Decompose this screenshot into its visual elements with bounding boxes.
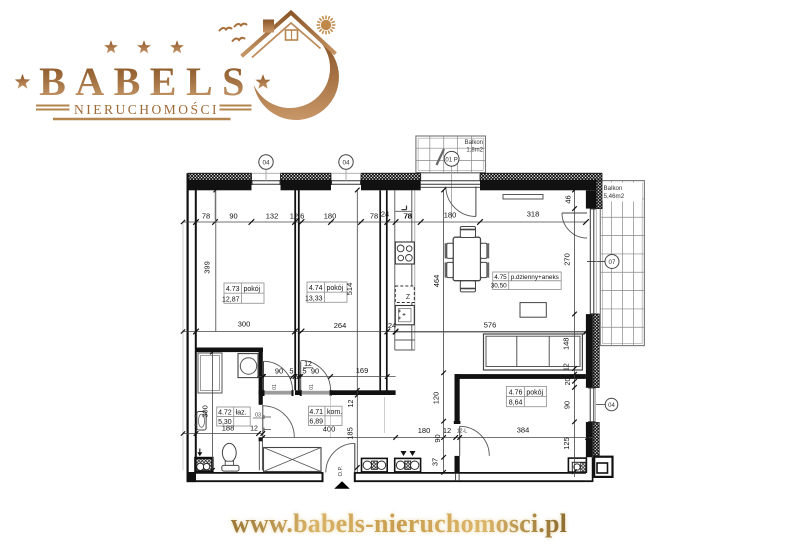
svg-text:p.dzienny+aneks: p.dzienny+aneks <box>511 274 559 281</box>
svg-text:4.73: 4.73 <box>226 286 240 293</box>
svg-text:180: 180 <box>324 212 337 221</box>
svg-text:8,64: 8,64 <box>509 400 523 407</box>
svg-text:90: 90 <box>433 434 442 442</box>
svg-text:Z: Z <box>406 294 411 301</box>
svg-text:4.76: 4.76 <box>509 390 523 397</box>
svg-text:180: 180 <box>418 426 431 435</box>
svg-text:300: 300 <box>200 405 209 418</box>
svg-text:kom.: kom. <box>327 409 342 416</box>
svg-text:464: 464 <box>432 275 441 288</box>
svg-text:04: 04 <box>608 403 615 409</box>
svg-text:04: 04 <box>262 160 270 167</box>
svg-text:400: 400 <box>323 425 336 434</box>
svg-text:270: 270 <box>563 253 572 266</box>
svg-text:46: 46 <box>564 195 573 203</box>
svg-text:13,33: 13,33 <box>305 295 323 302</box>
svg-text:01: 01 <box>309 384 315 390</box>
svg-text:01: 01 <box>272 384 278 390</box>
svg-text:318: 318 <box>527 210 540 219</box>
svg-text:148: 148 <box>561 338 570 351</box>
svg-text:D.P.: D.P. <box>338 466 344 476</box>
svg-text:www.babels-nieruchomosci.pl: www.babels-nieruchomosci.pl <box>231 509 567 538</box>
svg-text:4.74: 4.74 <box>309 285 323 292</box>
svg-text:01 P: 01 P <box>445 157 457 163</box>
svg-text:132: 132 <box>266 212 279 221</box>
svg-text:5,46m2: 5,46m2 <box>604 193 625 200</box>
svg-text:514: 514 <box>345 283 354 296</box>
svg-text:5: 5 <box>289 367 293 376</box>
svg-text:12-L: 12-L <box>457 429 467 435</box>
svg-text:12: 12 <box>304 361 312 368</box>
svg-text:384: 384 <box>517 426 530 435</box>
svg-text:90: 90 <box>563 401 572 409</box>
svg-text:37: 37 <box>431 458 440 466</box>
svg-text:78: 78 <box>370 212 378 221</box>
svg-text:90: 90 <box>275 367 283 376</box>
svg-text:4.72: 4.72 <box>218 410 232 417</box>
svg-text:03: 03 <box>255 413 261 419</box>
svg-text:125: 125 <box>562 437 571 450</box>
svg-text:24: 24 <box>381 210 389 219</box>
svg-text:12,6: 12,6 <box>290 212 305 221</box>
svg-text:180: 180 <box>444 211 457 220</box>
svg-text:78: 78 <box>404 212 412 221</box>
svg-text:6,89: 6,89 <box>309 419 323 426</box>
svg-text:120: 120 <box>432 392 441 405</box>
svg-text:264: 264 <box>334 321 347 330</box>
svg-text:pokój: pokój <box>244 286 261 293</box>
svg-text:20: 20 <box>565 378 572 386</box>
svg-text:1,8m2: 1,8m2 <box>466 148 483 154</box>
svg-text:185: 185 <box>346 427 355 440</box>
svg-text:576: 576 <box>484 321 497 330</box>
svg-text:30,50: 30,50 <box>491 283 507 290</box>
svg-text:pokój: pokój <box>327 285 344 292</box>
svg-text:24: 24 <box>388 321 396 330</box>
svg-text:BABELS: BABELS <box>39 59 254 104</box>
svg-text:NIERUCHOMOŚCI: NIERUCHOMOŚCI <box>74 102 219 117</box>
svg-text:Balkon: Balkon <box>604 185 623 192</box>
svg-text:12: 12 <box>564 363 571 371</box>
svg-text:4.75: 4.75 <box>494 274 507 281</box>
svg-text:188: 188 <box>222 424 235 433</box>
svg-text:łaz.: łaz. <box>236 410 247 417</box>
svg-text:300: 300 <box>238 320 251 329</box>
svg-text:4.71: 4.71 <box>309 409 323 416</box>
svg-text:04: 04 <box>342 160 350 167</box>
svg-text:12,87: 12,87 <box>222 296 240 303</box>
svg-text:78: 78 <box>202 212 210 221</box>
svg-text:pokój: pokój <box>526 390 543 397</box>
svg-text:12: 12 <box>443 426 451 435</box>
svg-text:07: 07 <box>609 259 616 266</box>
svg-text:399: 399 <box>203 261 212 274</box>
svg-text:12: 12 <box>348 400 355 408</box>
svg-text:12: 12 <box>250 426 258 433</box>
svg-text:90: 90 <box>229 212 237 221</box>
svg-text:Balkon: Balkon <box>465 140 483 146</box>
